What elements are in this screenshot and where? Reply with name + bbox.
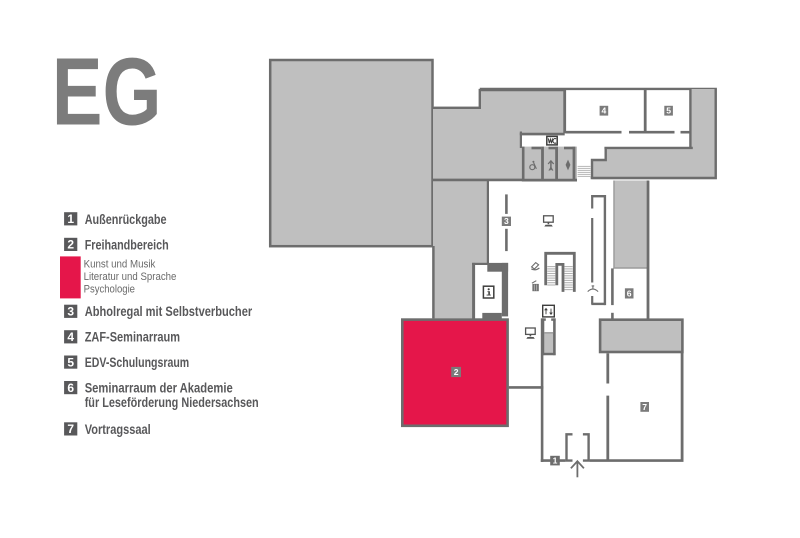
svg-text:EDV-Schulungsraum: EDV-Schulungsraum — [85, 355, 190, 370]
svg-text:4: 4 — [602, 106, 607, 116]
svg-text:Abholregal mit Selbstverbucher: Abholregal mit Selbstverbucher — [85, 304, 253, 319]
svg-text:Literatur und Sprache: Literatur und Sprache — [84, 271, 177, 283]
svg-text:7: 7 — [642, 402, 647, 412]
svg-text:ZAF-Seminarraum: ZAF-Seminarraum — [85, 330, 180, 345]
svg-text:2: 2 — [454, 367, 459, 377]
svg-text:7: 7 — [67, 422, 74, 436]
svg-text:6: 6 — [67, 381, 74, 395]
svg-text:5: 5 — [666, 106, 671, 116]
svg-text:5: 5 — [67, 355, 74, 369]
svg-text:Vortragssaal: Vortragssaal — [85, 422, 151, 437]
svg-text:Kunst und Musik: Kunst und Musik — [84, 258, 156, 270]
svg-text:1: 1 — [67, 212, 74, 226]
svg-text:1: 1 — [553, 456, 558, 466]
svg-text:Freihandbereich: Freihandbereich — [85, 238, 169, 253]
svg-text:2: 2 — [67, 238, 74, 252]
svg-text:3: 3 — [504, 216, 509, 226]
svg-text:Psychologie: Psychologie — [84, 284, 135, 296]
svg-text:für Leseförderung Niedersachse: für Leseförderung Niedersachsen — [85, 395, 259, 410]
svg-text:3: 3 — [67, 305, 74, 319]
svg-text:6: 6 — [627, 289, 632, 299]
svg-text:Seminarraum der Akademie: Seminarraum der Akademie — [85, 381, 233, 396]
svg-text:EG: EG — [52, 39, 162, 146]
svg-text:Außenrückgabe: Außenrückgabe — [85, 212, 167, 227]
svg-text:4: 4 — [67, 330, 74, 344]
